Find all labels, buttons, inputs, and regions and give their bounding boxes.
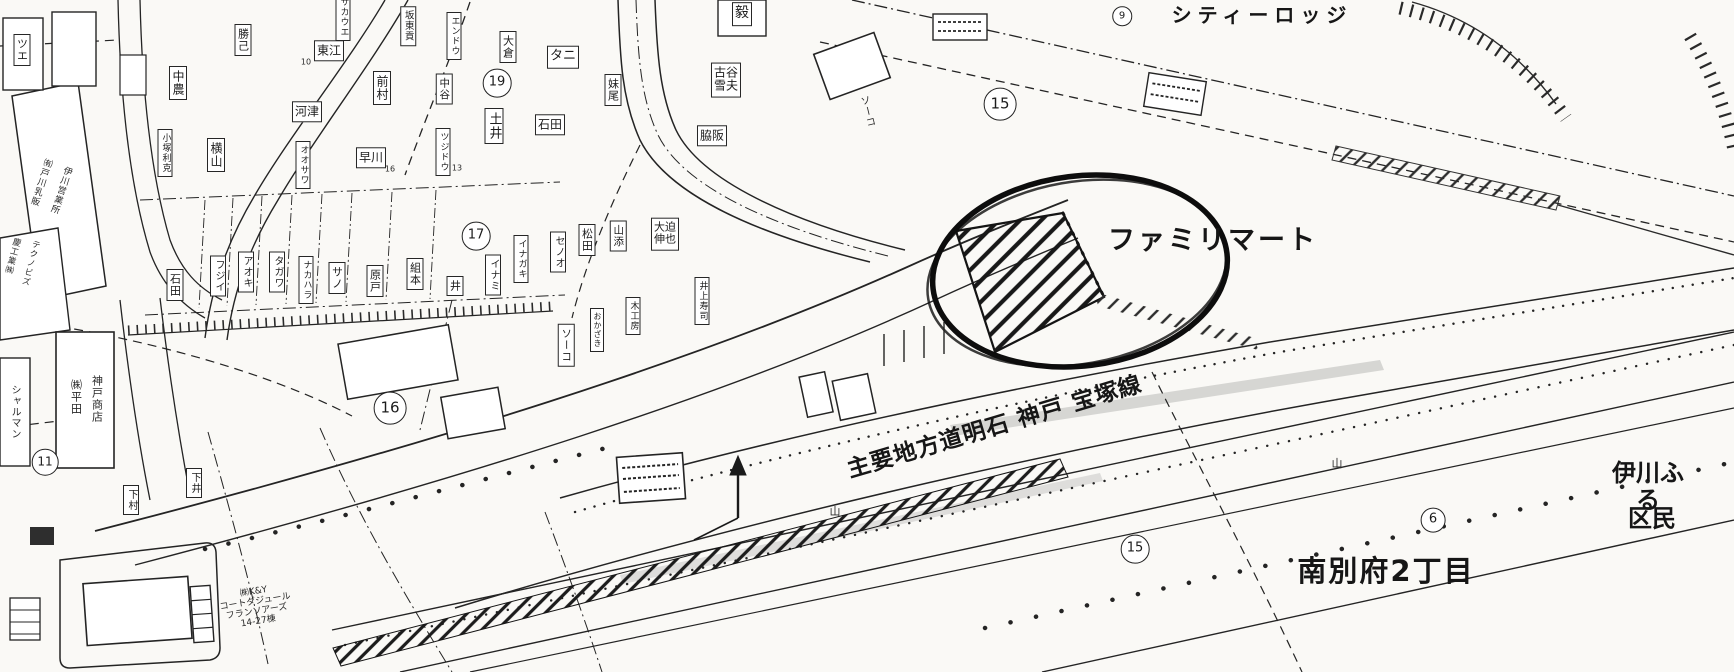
building-label: ソーコ	[558, 324, 575, 367]
building-label: 古谷 雪夫	[711, 63, 741, 98]
building-label: 妹尾	[605, 74, 622, 106]
building-label: 下村	[123, 485, 139, 515]
building-label: 組本	[407, 258, 424, 290]
building-label: タガワ	[269, 252, 285, 293]
building-label: 石田	[167, 269, 184, 301]
map-annotation: テクノビズ	[20, 239, 41, 287]
building-label: 下井	[186, 468, 202, 498]
map-annotation: 山	[1332, 458, 1343, 470]
building-label: イナミ	[485, 255, 501, 296]
map-annotation: ソーコ	[857, 95, 875, 129]
map-annotation: 13	[452, 165, 462, 174]
building-label: 横山	[207, 138, 225, 172]
building-label: 山添	[610, 221, 627, 252]
building-label: 井	[447, 276, 464, 296]
building-label: イナガキ	[514, 235, 529, 283]
building-label: サノ	[329, 262, 346, 294]
building-label: 大倉	[500, 31, 517, 63]
building-label: おかざき	[590, 308, 604, 352]
map-annotation: シャルマン	[9, 385, 19, 440]
map-label-layer: ファミリマート主要地方道明石 神戸 宝塚線南別府2丁目シティーロッジ伊川ふる区民…	[0, 0, 1734, 672]
building-label: 坂東貢	[400, 6, 416, 46]
circled-number: 16	[374, 392, 407, 425]
circled-number: 6	[1421, 508, 1446, 533]
map-annotation: 伊川営業所	[48, 165, 72, 215]
map-annotation: ㈱K&Y コートダジュール フランソアーズ 14-27棟	[218, 581, 295, 632]
circled-number: 19	[483, 69, 512, 98]
map-annotation: 16	[385, 166, 395, 175]
building-label: ナカハラ	[299, 256, 314, 304]
building-label: 石田	[535, 114, 565, 135]
building-label: 脇阪	[697, 125, 727, 146]
building-label: アオキ	[238, 252, 254, 293]
map-annotation: 慶工業㈱	[3, 237, 21, 276]
building-label: オオサワ	[296, 141, 311, 189]
building-label: 土井	[485, 108, 504, 144]
district-label: 南別府2丁目	[1297, 555, 1474, 587]
building-label: 前村	[373, 71, 391, 105]
building-label: 原戸	[367, 265, 384, 297]
building-label: 大迫 伸也	[651, 218, 679, 251]
map-annotation: 山	[830, 506, 841, 518]
building-label: エンドウ	[447, 12, 462, 60]
map-annotation: 10	[301, 59, 311, 68]
familymart-label: ファミリマート	[1108, 226, 1318, 256]
circled-number: 9	[1112, 6, 1132, 26]
building-label: 勝己	[235, 24, 252, 56]
building-label: 早川	[356, 147, 386, 168]
road-name-label: 主要地方道明石 神戸 宝塚線	[845, 372, 1146, 484]
building-label: サカウエ	[336, 0, 351, 41]
map-annotation: ㈱平田	[71, 379, 82, 415]
scanned-map-canvas: ファミリマート主要地方道明石 神戸 宝塚線南別府2丁目シティーロッジ伊川ふる区民…	[0, 0, 1734, 672]
building-label: ツジドウ	[436, 128, 451, 176]
building-label: 毅	[732, 2, 752, 26]
map-annotation: 神戸商店	[92, 375, 103, 423]
building-label: フジイ	[210, 256, 226, 297]
circled-number: 15	[984, 88, 1017, 121]
circled-number: 11	[32, 449, 59, 476]
building-label: 河津	[292, 101, 322, 122]
building-label: ツエ	[14, 34, 31, 66]
building-label: 東江	[314, 40, 344, 61]
circled-number: 15	[1121, 535, 1150, 564]
building-label: 小塚利克	[158, 129, 173, 177]
building-label: 木工房	[626, 297, 641, 335]
building-label: 松田	[579, 224, 596, 256]
kumin-label: 区民	[1628, 506, 1676, 533]
building-label: タニ	[547, 46, 579, 69]
building-label: 中農	[169, 66, 187, 100]
building-label: セノオ	[550, 232, 566, 273]
circled-number: 17	[462, 222, 491, 251]
building-label: 中谷	[436, 74, 453, 105]
map-annotation: ㈲戸川乳販	[28, 157, 52, 207]
city-lodge-label: シティーロッジ	[1172, 4, 1353, 26]
building-label: 井上寿司	[695, 277, 710, 325]
